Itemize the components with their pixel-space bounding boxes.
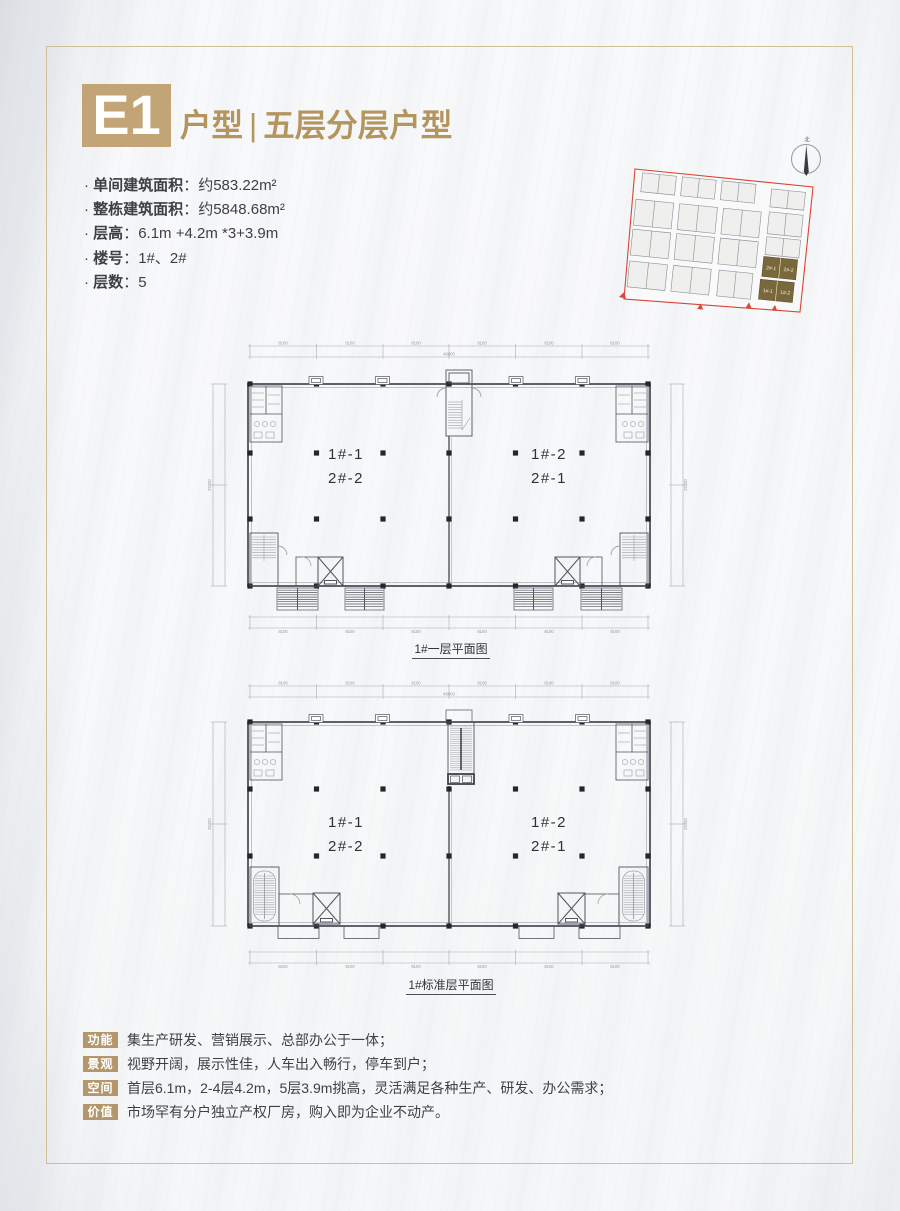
svg-text:48600: 48600	[443, 692, 455, 697]
svg-text:1#-2: 1#-2	[531, 814, 567, 831]
svg-text:2#-1: 2#-1	[531, 470, 567, 487]
svg-text:2#-2: 2#-2	[783, 267, 794, 274]
svg-text:25200: 25200	[683, 479, 688, 491]
svg-text:8100: 8100	[411, 629, 421, 634]
svg-text:1#-1: 1#-1	[328, 814, 364, 831]
svg-text:25200: 25200	[207, 818, 212, 830]
svg-text:48600: 48600	[443, 352, 455, 357]
svg-text:1#-2: 1#-2	[531, 446, 567, 463]
svg-text:8100: 8100	[345, 629, 355, 634]
svg-text:2#-1: 2#-1	[766, 265, 777, 272]
svg-text:8100: 8100	[477, 341, 487, 346]
svg-text:8100: 8100	[411, 964, 421, 969]
svg-text:8100: 8100	[278, 629, 288, 634]
svg-text:8100: 8100	[477, 629, 487, 634]
svg-text:8100: 8100	[610, 964, 620, 969]
svg-text:8100: 8100	[411, 341, 421, 346]
svg-text:8100: 8100	[278, 964, 288, 969]
svg-text:25200: 25200	[207, 479, 212, 491]
svg-text:北: 北	[804, 136, 810, 144]
svg-text:8100: 8100	[477, 964, 487, 969]
svg-text:8100: 8100	[610, 629, 620, 634]
svg-text:2#-2: 2#-2	[328, 838, 364, 855]
svg-text:25200: 25200	[683, 818, 688, 830]
svg-text:8100: 8100	[345, 341, 355, 346]
svg-text:8100: 8100	[411, 681, 421, 686]
svg-text:1#-1: 1#-1	[763, 288, 774, 295]
svg-text:8100: 8100	[345, 681, 355, 686]
svg-text:8100: 8100	[345, 964, 355, 969]
svg-text:8100: 8100	[544, 681, 554, 686]
svg-text:8100: 8100	[610, 681, 620, 686]
svg-text:1#-1: 1#-1	[328, 446, 364, 463]
svg-text:8100: 8100	[278, 681, 288, 686]
svg-text:8100: 8100	[544, 629, 554, 634]
svg-text:8100: 8100	[610, 341, 620, 346]
svg-text:2#-2: 2#-2	[328, 470, 364, 487]
svg-text:8100: 8100	[544, 341, 554, 346]
svg-text:8100: 8100	[544, 964, 554, 969]
svg-text:1#-2: 1#-2	[780, 290, 791, 297]
svg-text:8100: 8100	[477, 681, 487, 686]
svg-text:8100: 8100	[278, 341, 288, 346]
svg-text:2#-1: 2#-1	[531, 838, 567, 855]
